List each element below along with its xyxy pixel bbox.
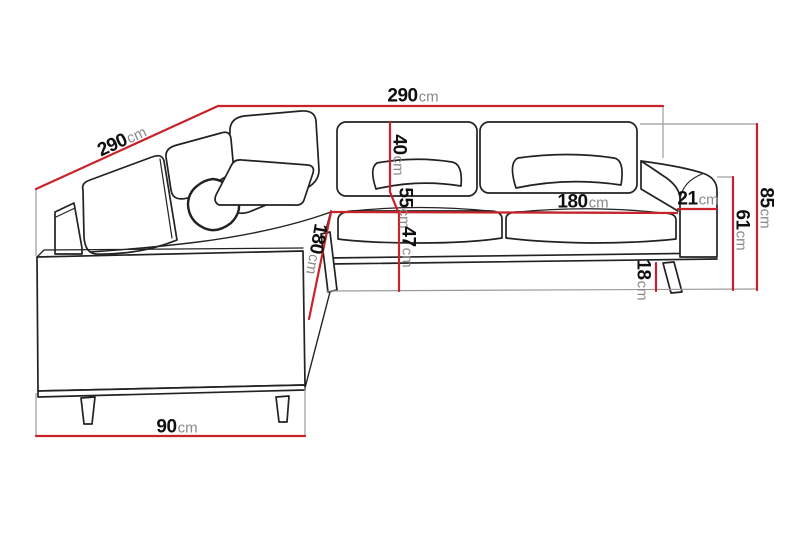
- throw-pillow-corner: [215, 160, 313, 205]
- left-base-receding-edge: [305, 292, 330, 388]
- leg-left-2: [276, 396, 289, 422]
- seat-cushion-1: [338, 211, 502, 243]
- base-front-top: [328, 253, 717, 258]
- left-back-cushion-front: [83, 156, 177, 254]
- left-front-face: [37, 251, 305, 391]
- base-front-bottom: [330, 259, 717, 264]
- sofa-dimension-diagram: 290cm 290cm 40cm 55cm 47cm 180cm 180cm 2…: [0, 0, 800, 533]
- leg-right-front: [663, 262, 682, 293]
- seat-cushion-2: [506, 212, 676, 243]
- diagram-canvas: [0, 0, 800, 533]
- leg-corner: [321, 232, 337, 292]
- ext-floor-line: [326, 289, 757, 291]
- leg-left-1: [81, 397, 95, 424]
- sofa-line-art: [37, 111, 717, 424]
- dim-line-width-seat: [331, 212, 677, 213]
